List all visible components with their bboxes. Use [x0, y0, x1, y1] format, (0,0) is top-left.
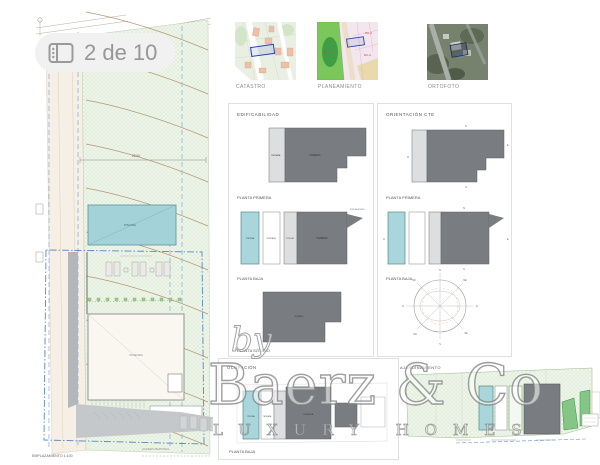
svg-text:S: S [463, 268, 465, 271]
utility-boxes [36, 204, 43, 262]
ocupacion-panel: OCUPACIÓN PISCINA TERRAZA VIVIENDA PLANT… [218, 358, 399, 460]
site-plan-figure: 22.00 PISCINA [30, 6, 213, 462]
svg-text:NE: NE [463, 279, 467, 282]
svg-text:SÓTANO: SÓTANO [294, 315, 303, 318]
svg-text:PORCHE ACCESO: PORCHE ACCESO [350, 208, 365, 211]
gallery-counter-label: 2 de 10 [84, 40, 157, 66]
svg-text:O: O [407, 156, 409, 159]
svg-text:SO: SO [413, 333, 417, 336]
map-catastro-label: CATASTRO [236, 84, 266, 90]
svg-text:PISCINA: PISCINA [247, 415, 255, 418]
svg-text:N: N [465, 125, 467, 128]
orientacion-panel: ORIENTACIÓN CTE N E S O PLANTA PRIMERA N… [377, 103, 512, 357]
ocupacion-plan-label: PLANTA BAJA [229, 449, 255, 454]
svg-text:O: O [402, 305, 404, 308]
plan-baja: PISCINA TERRAZA PORCHE VIVIENDA PORCHE A… [241, 208, 365, 264]
svg-text:N: N [463, 207, 465, 210]
plan-primera-label: PLANTA PRIMERA [237, 195, 272, 200]
access-note: ACCESO PEATONAL [142, 447, 170, 451]
svg-text:TERRAZA: TERRAZA [266, 237, 276, 240]
svg-text:PISCINA: PISCINA [246, 237, 255, 240]
ocupacion-plan: PISCINA TERRAZA VIVIENDA [243, 387, 385, 439]
plan-baja-label: PLANTA BAJA [237, 276, 263, 281]
ajardinamiento-figure: AJARDINAMIENTO [396, 362, 600, 446]
gallery-icon [48, 42, 74, 64]
zone-code: RU-2 [364, 53, 371, 57]
svg-text:S: S [465, 186, 467, 189]
plot-outline [450, 43, 468, 58]
svg-text:O: O [383, 238, 385, 241]
map-planeamiento-label: PLANEAMIENTO [318, 84, 362, 90]
svg-text:TERRAZA: TERRAZA [271, 154, 281, 157]
gallery-image[interactable]: 22.00 PISCINA [0, 0, 600, 465]
site-plan-title: EMPLAZAMIENTO 1:100 [32, 454, 73, 458]
plan-primera-cte-label: PLANTA PRIMERA [386, 195, 421, 200]
compass-rose: N NE E SE S SO O NO [402, 269, 478, 346]
plan-primera: TERRAZA VIVIENDA [269, 128, 366, 182]
ajardinamiento-header: AJARDINAMIENTO [400, 365, 441, 370]
svg-text:VIVIENDA: VIVIENDA [309, 154, 321, 157]
svg-text:E: E [507, 144, 509, 147]
street-strip [46, 36, 86, 454]
legend-stamp [582, 414, 598, 426]
svg-text:SE: SE [464, 332, 468, 335]
svg-text:PORCHE: PORCHE [286, 238, 294, 240]
plot-outline [347, 37, 365, 47]
map-ortofoto [427, 24, 488, 80]
svg-text:E: E [476, 305, 478, 308]
svg-text:S: S [439, 343, 441, 346]
map-catastro [235, 22, 296, 80]
house-label: VIVIENDA [129, 353, 143, 357]
plan-sotano-label: PLANTA SÓTANO [237, 348, 270, 353]
map-planeamiento: RL-P RU-2 RU-2 [317, 22, 378, 80]
plan-primera-cte: N E S O [407, 125, 509, 189]
retaining-wall [68, 252, 78, 408]
building-footprint: VIVIENDA [88, 314, 184, 408]
orientacion-header: ORIENTACIÓN CTE [386, 111, 435, 117]
svg-text:N: N [439, 269, 441, 272]
dimension-label: 22.00 [132, 154, 140, 158]
svg-text:E: E [507, 238, 509, 241]
map-ortofoto-label: ORTOFOTO [428, 84, 459, 90]
zone-code: RU-2 [365, 31, 372, 35]
garden-pool [479, 386, 493, 430]
gallery-counter-badge[interactable]: 2 de 10 [35, 33, 175, 72]
plan-baja-cte-label: PLANTA BAJA [386, 276, 412, 281]
ocupacion-header: OCUPACIÓN [227, 365, 257, 370]
svg-text:TERRAZA: TERRAZA [263, 415, 272, 418]
plan-sotano: SÓTANO [263, 292, 341, 342]
plan-baja-cte: N E S O [383, 207, 509, 271]
svg-text:VIVIENDA: VIVIENDA [303, 413, 314, 416]
pool-label: PISCINA [124, 223, 136, 227]
garden-building [524, 384, 560, 434]
edificabilidad-header: EDIFICABILIDAD [237, 112, 280, 117]
svg-text:NO: NO [412, 279, 416, 282]
zone-code: RL-P [324, 50, 331, 54]
sun-loungers [106, 262, 170, 276]
svg-text:VIVIENDA: VIVIENDA [316, 237, 328, 240]
edificabilidad-panel: EDIFICABILIDAD TERRAZA VIVIENDA PLANTA P… [228, 103, 374, 357]
